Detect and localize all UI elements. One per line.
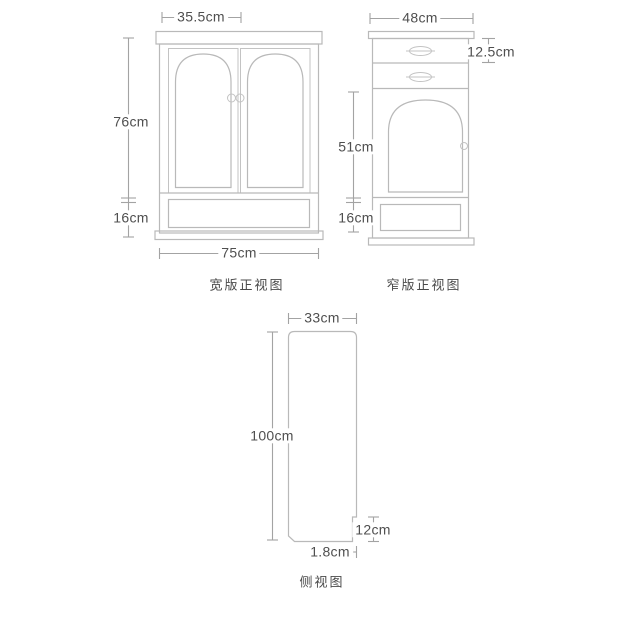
wide-front-view-drawing: [155, 32, 323, 240]
wide-body: [160, 44, 319, 233]
side-panel-profile: [289, 332, 357, 542]
narrow-bottom-panel: [381, 205, 461, 231]
narrow-arch-window: [389, 100, 463, 192]
dim-line-wide-heights: [121, 38, 136, 237]
wide-base-rail: [155, 231, 323, 240]
narrow-door-knob: [461, 143, 468, 150]
narrow-base-rail: [369, 238, 475, 245]
dim-label-narrow-base-height: 16cm: [335, 210, 376, 225]
side-view-drawing: [289, 332, 357, 542]
dim-label-side-depth: 33cm: [301, 310, 342, 325]
wide-right-door: [241, 49, 311, 194]
wide-right-arch-window: [248, 54, 304, 188]
narrow-front-view-drawing: [369, 32, 475, 246]
narrow-top-rail: [369, 32, 475, 39]
dim-label-narrow-door-height: 51cm: [335, 139, 376, 154]
dim-label-side-height: 100cm: [247, 428, 297, 443]
dim-label-side-toe-height: 12cm: [352, 522, 393, 537]
dim-label-wide-total-width: 75cm: [218, 245, 259, 260]
dim-label-wide-base-height: 16cm: [110, 210, 151, 225]
view-title-narrow-front: 窄版正视图: [384, 275, 463, 294]
view-title-wide-front: 宽版正视图: [207, 275, 286, 294]
dim-label-narrow-width: 48cm: [399, 10, 440, 25]
dim-label-narrow-drawer-height: 12.5cm: [464, 44, 518, 59]
wide-bottom-panel: [169, 200, 310, 228]
dim-label-side-toe-depth: 1.8cm: [307, 544, 353, 559]
narrow-body: [373, 39, 469, 239]
dim-label-wide-door-width: 35.5cm: [174, 9, 228, 24]
dim-label-wide-upper-height: 76cm: [110, 114, 151, 129]
view-title-side: 侧视图: [297, 572, 346, 591]
wide-top-rail: [156, 32, 322, 45]
wide-left-door: [169, 49, 239, 194]
dim-line-side-toe-depth: [353, 546, 357, 558]
narrow-drawer2-handle: [406, 73, 435, 82]
furniture-dimension-diagram: 35.5cm 76cm 16cm 75cm 宽版正视图 48cm 12.5cm …: [0, 0, 640, 640]
wide-left-arch-window: [176, 54, 232, 188]
narrow-drawer1-handle: [406, 47, 435, 56]
